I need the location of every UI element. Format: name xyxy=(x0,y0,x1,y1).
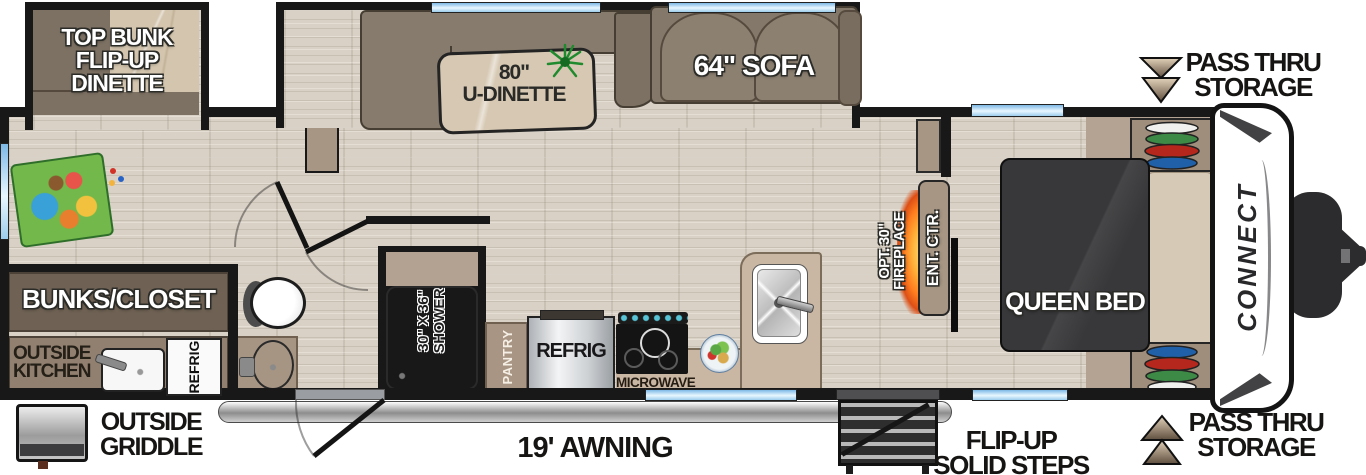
interior-wall xyxy=(366,216,490,224)
microwave-label: MICROWAVE xyxy=(616,375,716,390)
bed-pillows xyxy=(1146,172,1214,346)
bunks-closet-label: BUNKS/CLOSET xyxy=(8,284,229,315)
pantry-label: PANTRY xyxy=(495,312,519,402)
steps-label: FLIP-UP SOLID STEPS xyxy=(921,428,1101,475)
entry-door xyxy=(295,389,385,400)
toilet-icon xyxy=(250,277,306,329)
pass-thru-storage-label: PASS THRU STORAGE xyxy=(1173,50,1333,99)
ent-ctr-label: ENT. CTR. xyxy=(924,188,944,308)
kitchen-window xyxy=(645,389,797,401)
plant-icon xyxy=(545,42,585,82)
interior-wall xyxy=(8,264,232,272)
refrigerator-vent xyxy=(540,310,604,320)
play-mat xyxy=(10,152,115,248)
slideout-window xyxy=(668,2,836,13)
pass-thru-storage-label: PASS THRU STORAGE xyxy=(1176,410,1336,459)
brand-logo: CONNECT xyxy=(1232,152,1262,362)
bunk-dinette-label: TOP BUNK FLIP-UP DINETTE xyxy=(33,26,201,95)
griddle-detail xyxy=(20,444,84,456)
game-piece xyxy=(118,176,124,182)
rear-window xyxy=(0,143,9,240)
refrig-label: REFRIG xyxy=(527,340,615,363)
sink-icon xyxy=(252,340,294,390)
burner-icon xyxy=(624,348,644,368)
shower-label: 30" X 36" SHOWER xyxy=(409,266,455,376)
awning-label: 19' AWNING xyxy=(470,432,720,465)
outside-kitchen-sink xyxy=(101,348,165,392)
griddle-detail xyxy=(38,461,48,469)
outside-kitchen-label: OUTSIDE KITCHEN xyxy=(13,345,101,381)
griddle-label: OUTSIDE GRIDDLE xyxy=(90,410,212,459)
bedroom-window xyxy=(972,389,1068,401)
slideout-window xyxy=(431,2,601,13)
sofa-label: 64" SOFA xyxy=(650,50,858,82)
steps-leg xyxy=(846,465,853,474)
outside-refrig-label: REFRIG xyxy=(182,322,206,412)
burner-icon xyxy=(658,350,678,370)
queen-bed xyxy=(1000,158,1150,352)
tv-icon xyxy=(951,238,958,332)
hangers-icon xyxy=(1132,344,1212,394)
game-piece xyxy=(110,168,116,174)
game-piece xyxy=(109,180,115,186)
interior-wall xyxy=(941,115,951,177)
stove-knobs xyxy=(618,312,688,324)
floorplan-canvas: TOP BUNK FLIP-UP DINETTE 80" U-DINETTE 6… xyxy=(0,0,1366,475)
faucet-icon xyxy=(239,357,255,377)
bedroom-window xyxy=(971,104,1064,117)
queen-bed-label: QUEEN BED xyxy=(1000,288,1150,317)
hitch-jack xyxy=(1341,249,1350,263)
interior-wall xyxy=(228,264,238,400)
fireplace-label: OPT. 30" FIREPLACE xyxy=(870,186,916,316)
bedroom-cabinet xyxy=(916,119,941,173)
hitch-coupler xyxy=(1352,246,1366,266)
plate-icon xyxy=(700,334,739,373)
entry-door xyxy=(836,389,940,400)
